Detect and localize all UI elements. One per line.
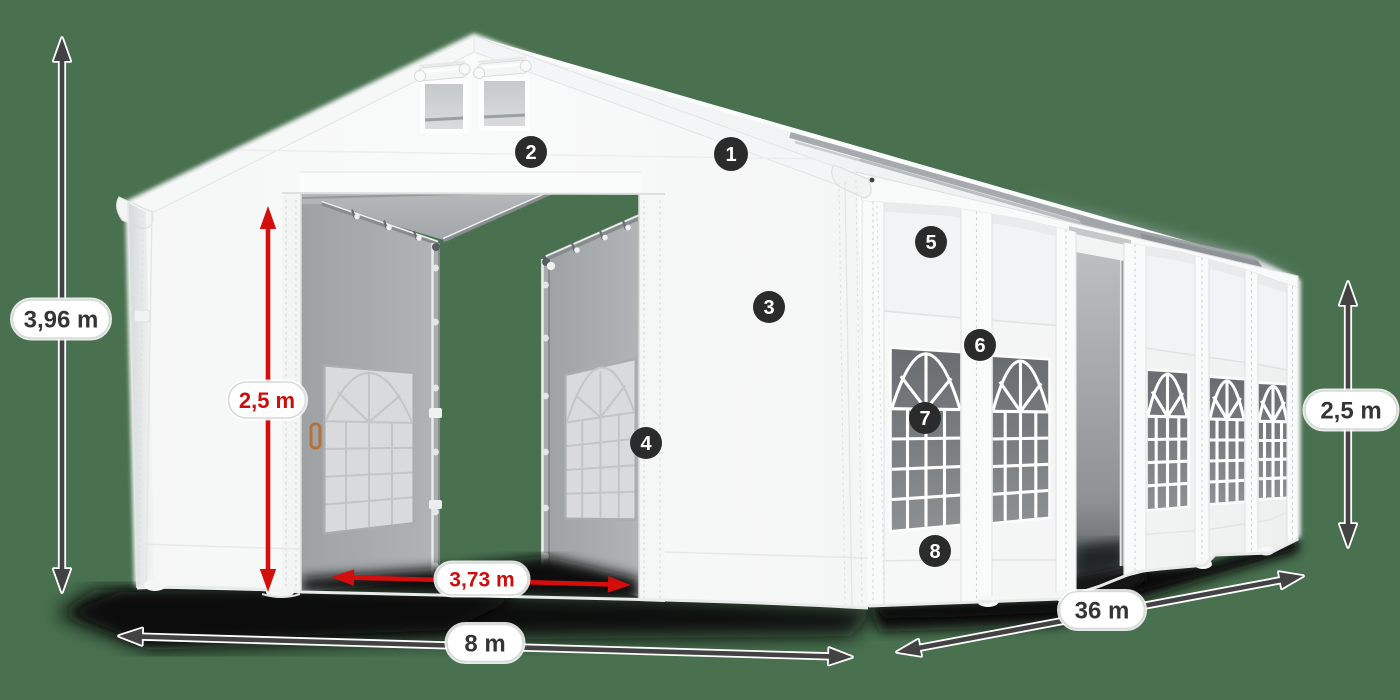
svg-text:8: 8 [929,541,940,563]
svg-text:4: 4 [640,433,652,455]
svg-text:5: 5 [925,232,936,254]
svg-text:3: 3 [763,297,774,319]
svg-text:8 m: 8 m [464,631,505,658]
svg-text:3,96 m: 3,96 m [24,307,99,334]
svg-text:2,5 m: 2,5 m [1320,398,1381,425]
svg-text:36 m: 36 m [1075,598,1130,625]
svg-text:3,73 m: 3,73 m [449,569,514,592]
svg-text:2,5 m: 2,5 m [239,388,295,413]
svg-text:2: 2 [525,142,536,164]
svg-text:7: 7 [919,408,930,430]
svg-text:1: 1 [725,144,736,166]
svg-text:6: 6 [974,335,985,357]
